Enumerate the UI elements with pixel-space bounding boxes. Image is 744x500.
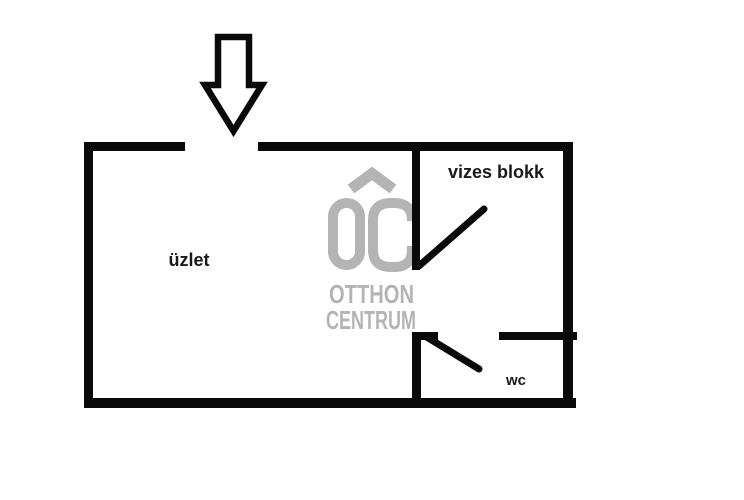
divider-wall-upper	[412, 151, 420, 270]
room-label-uzlet: üzlet	[168, 250, 209, 270]
roof-chevron-icon	[351, 174, 393, 190]
floor-plan-page: OTTHON CENTRUM üzlet vizes blokk wc	[0, 0, 744, 500]
otthon-centrum-watermark: OTTHON CENTRUM	[326, 174, 416, 336]
top-wall-left-segment	[84, 142, 185, 151]
top-wall-right-segment	[258, 142, 573, 151]
right-wall	[563, 142, 573, 407]
room-label-vizes-blokk: vizes blokk	[448, 162, 545, 182]
floor-plan-canvas: OTTHON CENTRUM üzlet vizes blokk wc	[0, 0, 744, 500]
vizes-blokk-door-leaf	[419, 209, 484, 266]
room-labels: üzlet vizes blokk wc	[168, 162, 545, 389]
divider-wall-lower	[412, 332, 421, 402]
room-label-wc: wc	[505, 372, 526, 389]
logo-letter-c-shape	[373, 203, 412, 267]
logo-letter-o-shape	[333, 203, 360, 265]
entrance-arrow-icon	[205, 37, 262, 131]
watermark-words: OTTHON CENTRUM	[326, 279, 416, 335]
watermark-logo-shapes	[333, 174, 412, 268]
bottom-wall	[84, 398, 576, 408]
wc-partition-wall-right	[499, 332, 577, 340]
door-leaves	[419, 209, 484, 369]
watermark-line2: CENTRUM	[326, 305, 416, 335]
wc-door-leaf	[425, 336, 479, 369]
left-wall	[84, 142, 93, 408]
